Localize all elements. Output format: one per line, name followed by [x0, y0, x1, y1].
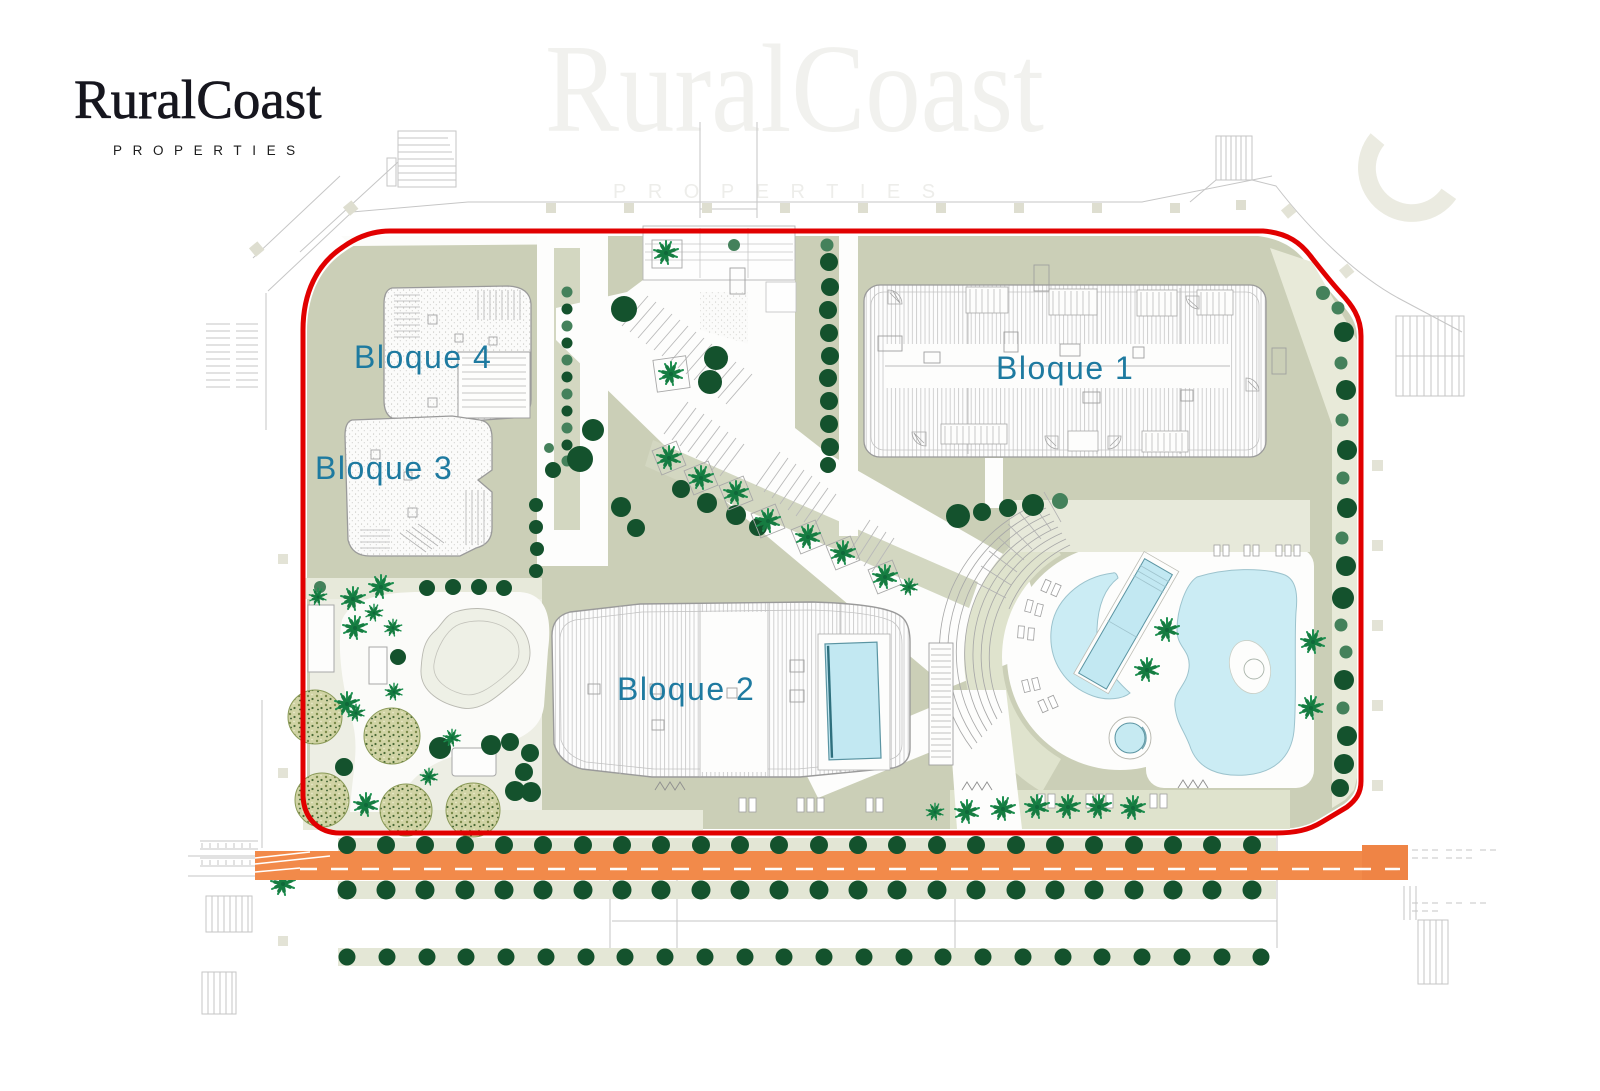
svg-text:Bloque 3: Bloque 3: [315, 450, 453, 486]
svg-text:RuralCoast: RuralCoast: [74, 69, 321, 130]
svg-text:Bloque 2: Bloque 2: [617, 671, 755, 707]
svg-text:PROPERTIES: PROPERTIES: [113, 143, 306, 158]
svg-text:Bloque 1: Bloque 1: [996, 350, 1134, 386]
svg-text:RuralCoast: RuralCoast: [545, 18, 1044, 158]
svg-text:PROPERTIES: PROPERTIES: [613, 181, 957, 203]
svg-text:Bloque 4: Bloque 4: [354, 339, 492, 375]
